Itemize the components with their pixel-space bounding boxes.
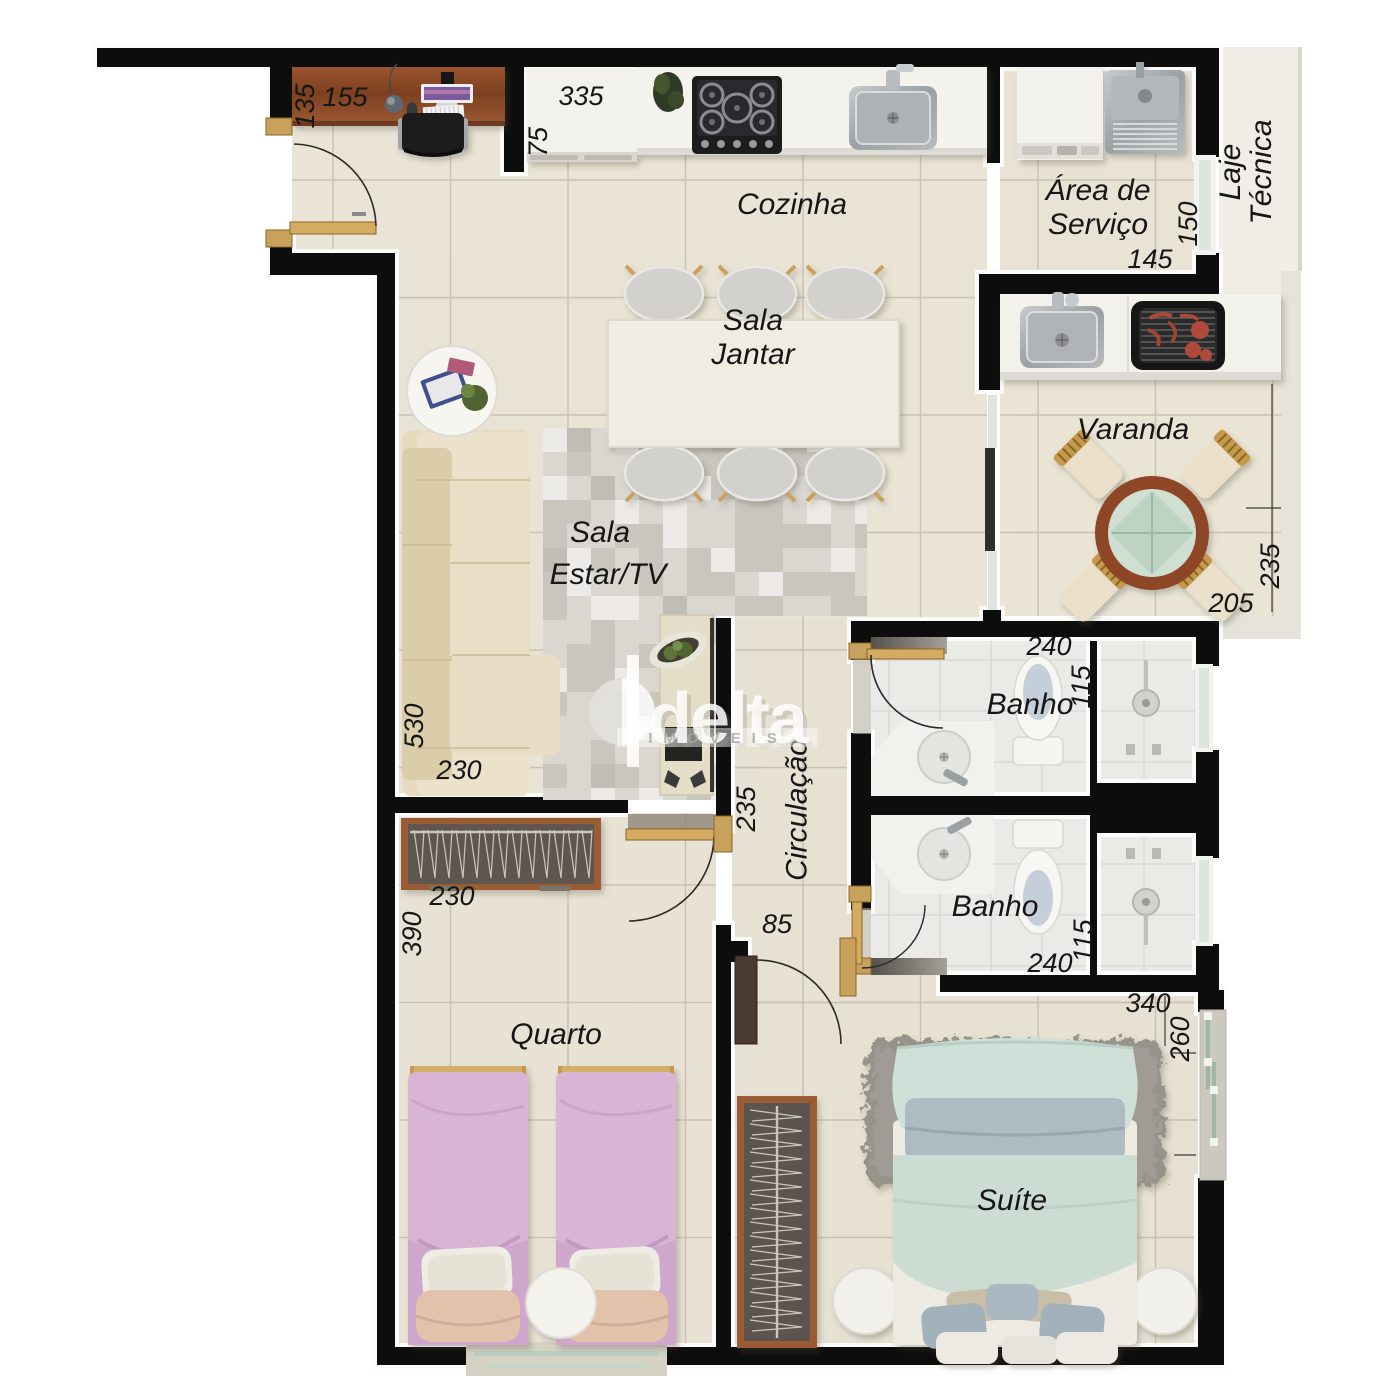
svg-text:Quarto: Quarto xyxy=(510,1018,602,1051)
svg-text:240: 240 xyxy=(1026,948,1072,978)
svg-text:335: 335 xyxy=(558,81,604,111)
svg-text:240: 240 xyxy=(1025,631,1071,661)
svg-text:Serviço: Serviço xyxy=(1048,208,1148,241)
svg-text:Sala: Sala xyxy=(723,304,783,337)
svg-text:530: 530 xyxy=(399,703,429,748)
svg-text:Varanda: Varanda xyxy=(1077,413,1189,446)
svg-text:Cozinha: Cozinha xyxy=(737,188,847,221)
svg-text:Técnica: Técnica xyxy=(1245,119,1278,224)
svg-text:IMÓVEIS: IMÓVEIS xyxy=(648,729,788,747)
svg-text:135: 135 xyxy=(290,82,320,128)
svg-text:235: 235 xyxy=(731,785,761,832)
svg-text:150: 150 xyxy=(1173,201,1203,246)
svg-text:85: 85 xyxy=(762,909,793,939)
svg-text:Estar/TV: Estar/TV xyxy=(550,558,670,591)
svg-text:340: 340 xyxy=(1125,988,1170,1018)
svg-text:230: 230 xyxy=(435,755,481,785)
svg-text:Banho: Banho xyxy=(987,688,1074,721)
svg-text:205: 205 xyxy=(1207,588,1254,618)
svg-text:115: 115 xyxy=(1066,664,1096,708)
svg-text:75: 75 xyxy=(523,126,553,157)
svg-text:260: 260 xyxy=(1165,1016,1195,1062)
svg-text:155: 155 xyxy=(322,82,368,112)
svg-text:230: 230 xyxy=(428,881,474,911)
svg-text:Sala: Sala xyxy=(570,516,630,549)
svg-text:Jantar: Jantar xyxy=(710,338,795,371)
svg-text:Área de: Área de xyxy=(1043,174,1150,207)
svg-text:Suíte: Suíte xyxy=(977,1184,1047,1217)
svg-text:390: 390 xyxy=(397,911,427,956)
svg-text:145: 145 xyxy=(1127,244,1173,274)
svg-text:Banho: Banho xyxy=(952,890,1039,923)
svg-text:235: 235 xyxy=(1255,542,1285,589)
svg-text:Laje: Laje xyxy=(1214,144,1247,201)
